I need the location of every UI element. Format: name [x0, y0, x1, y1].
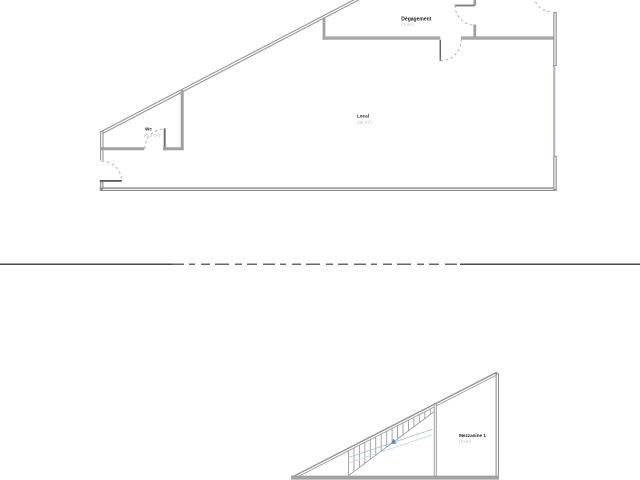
svg-text:(3 m²): (3 m²): [401, 22, 414, 27]
svg-text:(36 m²): (36 m²): [357, 120, 372, 125]
svg-text:Wc: Wc: [145, 127, 152, 132]
svg-text:(7 m²): (7 m²): [459, 439, 472, 444]
svg-text:(0.4 m²): (0.4 m²): [144, 133, 161, 138]
svg-text:Mezzanine 1: Mezzanine 1: [459, 433, 486, 438]
svg-text:Local: Local: [357, 114, 369, 119]
